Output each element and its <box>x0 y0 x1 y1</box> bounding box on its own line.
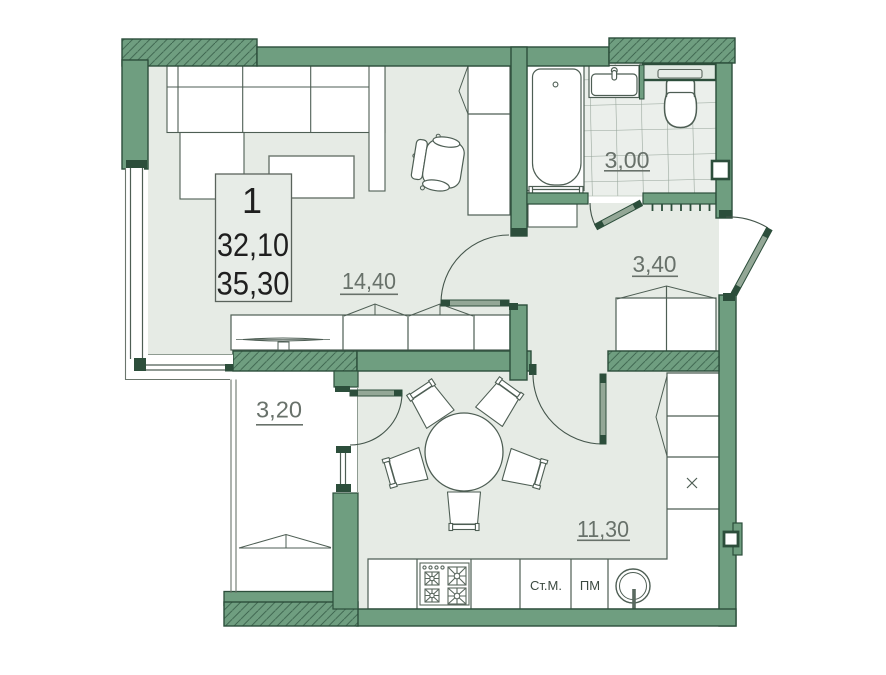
svg-text:3,20: 3,20 <box>256 397 302 423</box>
svg-text:ПМ: ПМ <box>580 578 600 593</box>
svg-text:Ст.М.: Ст.М. <box>530 578 562 593</box>
svg-text:11,30: 11,30 <box>577 516 629 542</box>
svg-text:3,00: 3,00 <box>605 147 650 173</box>
svg-text:1: 1 <box>242 180 262 221</box>
svg-text:32,10: 32,10 <box>217 227 289 263</box>
svg-text:14,40: 14,40 <box>342 268 396 294</box>
svg-text:3,40: 3,40 <box>633 251 677 277</box>
svg-text:35,30: 35,30 <box>217 266 290 302</box>
